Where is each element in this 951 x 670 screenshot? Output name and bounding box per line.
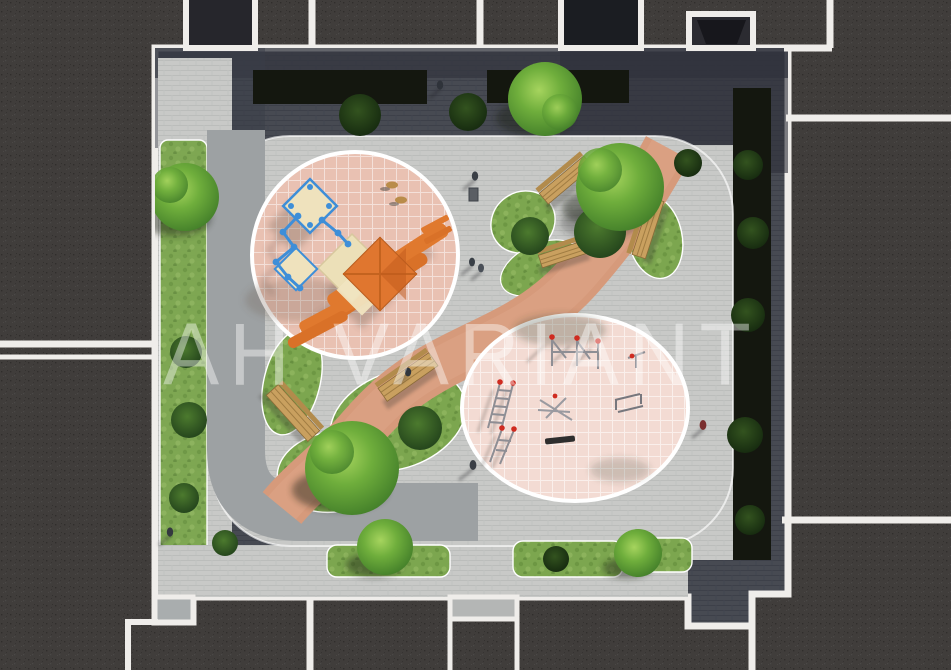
planting-bed xyxy=(253,70,427,104)
courtyard-render: АН VARIANT xyxy=(0,0,951,670)
trash-bin xyxy=(469,188,478,201)
watermark-text: АН VARIANT xyxy=(163,305,761,403)
south-porch xyxy=(450,597,517,619)
entrance-passage xyxy=(561,0,641,48)
entrance-passage xyxy=(186,0,255,48)
south-step xyxy=(155,597,193,622)
